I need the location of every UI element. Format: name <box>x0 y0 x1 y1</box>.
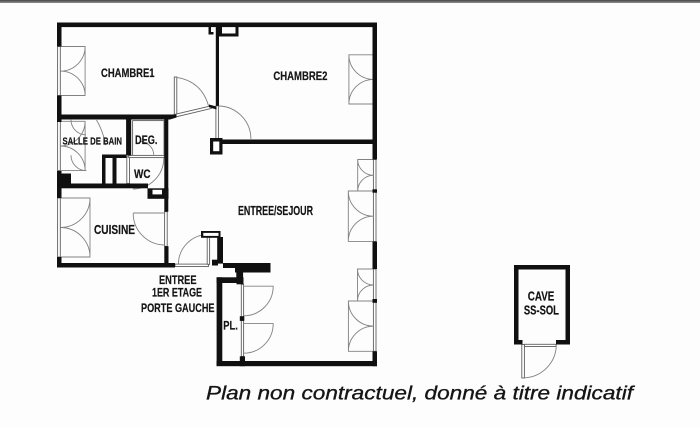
svg-text:1ER ETAGE: 1ER ETAGE <box>152 286 202 300</box>
svg-text:CHAMBRE1: CHAMBRE1 <box>101 66 155 80</box>
svg-text:ENTREE/SEJOUR: ENTREE/SEJOUR <box>238 203 313 218</box>
svg-text:CUISINE: CUISINE <box>94 222 135 237</box>
svg-text:CHAMBRE2: CHAMBRE2 <box>273 69 327 83</box>
svg-text:SALLE DE BAIN: SALLE DE BAIN <box>63 136 123 147</box>
svg-text:SS-SOL: SS-SOL <box>524 303 559 317</box>
svg-text:PL.: PL. <box>223 318 238 332</box>
svg-text:DEG.: DEG. <box>135 134 158 147</box>
svg-text:CAVE: CAVE <box>528 289 555 303</box>
svg-text:Plan non contractuel, donné à: Plan non contractuel, donné à titre indi… <box>206 383 636 405</box>
svg-text:PORTE GAUCHE: PORTE GAUCHE <box>141 301 215 315</box>
svg-text:WC: WC <box>134 167 151 181</box>
